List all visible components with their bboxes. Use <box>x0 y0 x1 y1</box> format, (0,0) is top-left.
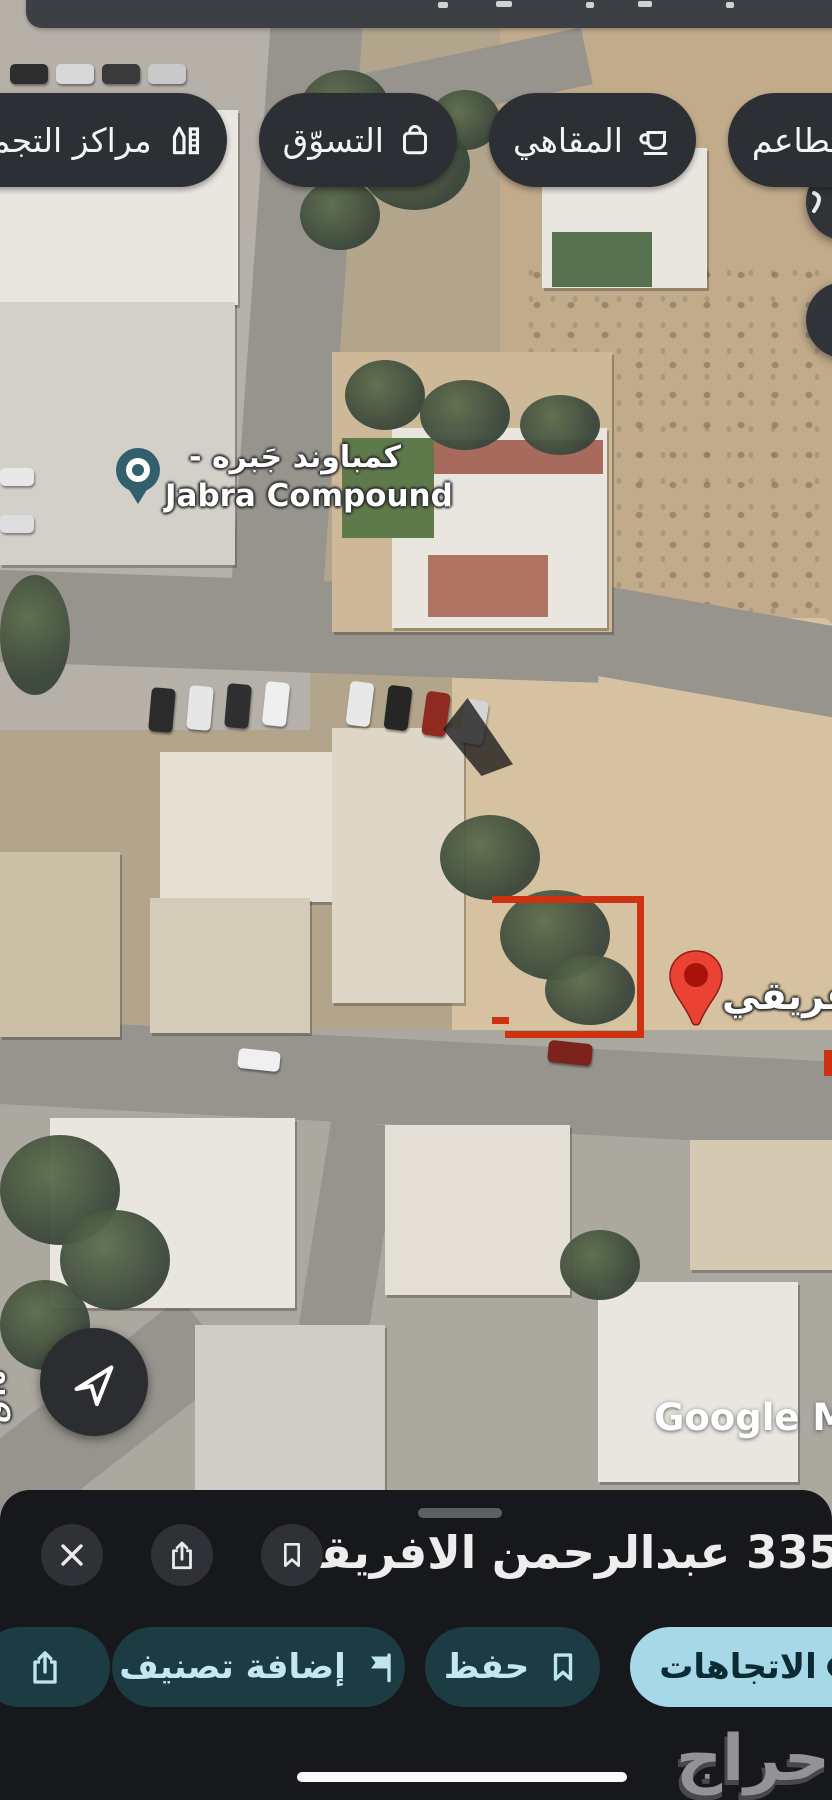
close-icon <box>57 1540 87 1570</box>
save-label: حفظ <box>444 1647 529 1687</box>
car <box>10 64 48 84</box>
car <box>0 515 34 533</box>
map-building-green-roof <box>552 232 652 287</box>
compound-label-ar: كمباوند جَبره - <box>170 440 420 475</box>
coffee-cup-icon <box>636 122 672 158</box>
map-canvas[interactable]: كمباوند جَبره - Jabra Compound الافريقي … <box>0 0 832 1520</box>
car <box>262 681 290 727</box>
place-title: 335 عبدالرحمن الافريقي <box>275 1526 832 1579</box>
shopping-bag-icon <box>397 122 433 158</box>
share-button[interactable] <box>151 1524 213 1586</box>
google-maps-screen: كمباوند جَبره - Jabra Compound الافريقي … <box>0 0 832 1800</box>
map-building <box>690 1140 832 1270</box>
map-building <box>598 1282 798 1482</box>
map-building <box>0 852 120 1037</box>
compound-label-en: Jabra Compound <box>165 478 430 514</box>
google-watermark: Google Ma <box>654 1396 832 1439</box>
tree <box>560 1230 640 1300</box>
share-icon <box>25 1647 65 1687</box>
bookmark-button[interactable] <box>261 1524 323 1586</box>
search-text-fragment <box>726 2 734 8</box>
search-text-fragment <box>438 2 448 8</box>
map-building <box>195 1325 385 1490</box>
tree <box>300 180 380 250</box>
tree <box>440 815 540 900</box>
home-indicator[interactable] <box>297 1772 627 1782</box>
directions-label: الاتجاهات <box>659 1647 817 1687</box>
destination-label: الافريقي <box>722 974 832 1018</box>
chip-restaurants[interactable]: المطاعم <box>728 93 832 187</box>
chip-label: المطاعم <box>752 121 832 160</box>
plot-outline-stub <box>492 1017 509 1024</box>
share-icon <box>165 1538 199 1572</box>
chip-label: التسوّق <box>283 121 384 160</box>
search-text-fragment <box>586 2 594 8</box>
search-text-fragment <box>638 1 652 7</box>
car <box>56 64 94 84</box>
share-pill-button[interactable] <box>0 1627 110 1707</box>
compound-pin[interactable] <box>112 446 164 512</box>
map-building <box>0 302 235 565</box>
plot-outline <box>505 896 644 1038</box>
navigation-arrow-icon <box>65 1353 123 1411</box>
chip-cafes[interactable]: المقاهي <box>489 93 696 187</box>
directions-button[interactable]: الاتجاهات <box>630 1627 832 1707</box>
bookmark-icon <box>276 1539 308 1571</box>
plot-outline-edge-fragment <box>824 1050 832 1076</box>
close-button[interactable] <box>41 1524 103 1586</box>
plot-outline-stub <box>492 896 509 903</box>
cosmetics-icon <box>165 121 203 159</box>
partial-glyph-icon <box>806 187 832 217</box>
car <box>148 64 186 84</box>
chip-label: مراكز التجميل <box>0 121 152 160</box>
car <box>237 1048 281 1072</box>
chip-beauty-centers[interactable]: مراكز التجميل <box>0 93 227 187</box>
tree <box>520 395 600 455</box>
haraj-watermark: حراج <box>676 1722 830 1796</box>
category-chips-bar: المطاعم المقاهي التسوّق <box>0 93 832 187</box>
car <box>0 468 34 486</box>
car <box>102 64 140 84</box>
car <box>547 1040 593 1066</box>
search-text-fragment <box>496 1 512 7</box>
flag-icon <box>362 1649 398 1685</box>
tree <box>420 380 510 450</box>
my-location-button[interactable] <box>40 1328 148 1436</box>
chip-label: المقاهي <box>513 121 623 160</box>
destination-pin[interactable] <box>664 948 728 1036</box>
bookmark-icon <box>545 1649 581 1685</box>
chip-shopping[interactable]: التسوّق <box>259 93 457 187</box>
directions-icon <box>823 1633 832 1701</box>
street-label-fragment: ١٥ق <box>0 1370 11 1423</box>
search-bar[interactable] <box>26 0 832 28</box>
sheet-drag-handle[interactable] <box>418 1508 502 1518</box>
map-building <box>160 752 335 902</box>
map-building-red-roof <box>428 555 548 617</box>
map-building <box>385 1125 570 1295</box>
car <box>383 685 412 732</box>
car <box>224 683 252 729</box>
map-building <box>150 898 310 1033</box>
car <box>148 687 176 733</box>
car <box>345 681 374 728</box>
tree <box>345 360 425 430</box>
tree <box>0 575 70 695</box>
save-button[interactable]: حفظ <box>425 1627 600 1707</box>
add-label-button[interactable]: إضافة تصنيف <box>112 1627 405 1707</box>
add-label-label: إضافة تصنيف <box>119 1647 346 1687</box>
car <box>186 685 214 731</box>
